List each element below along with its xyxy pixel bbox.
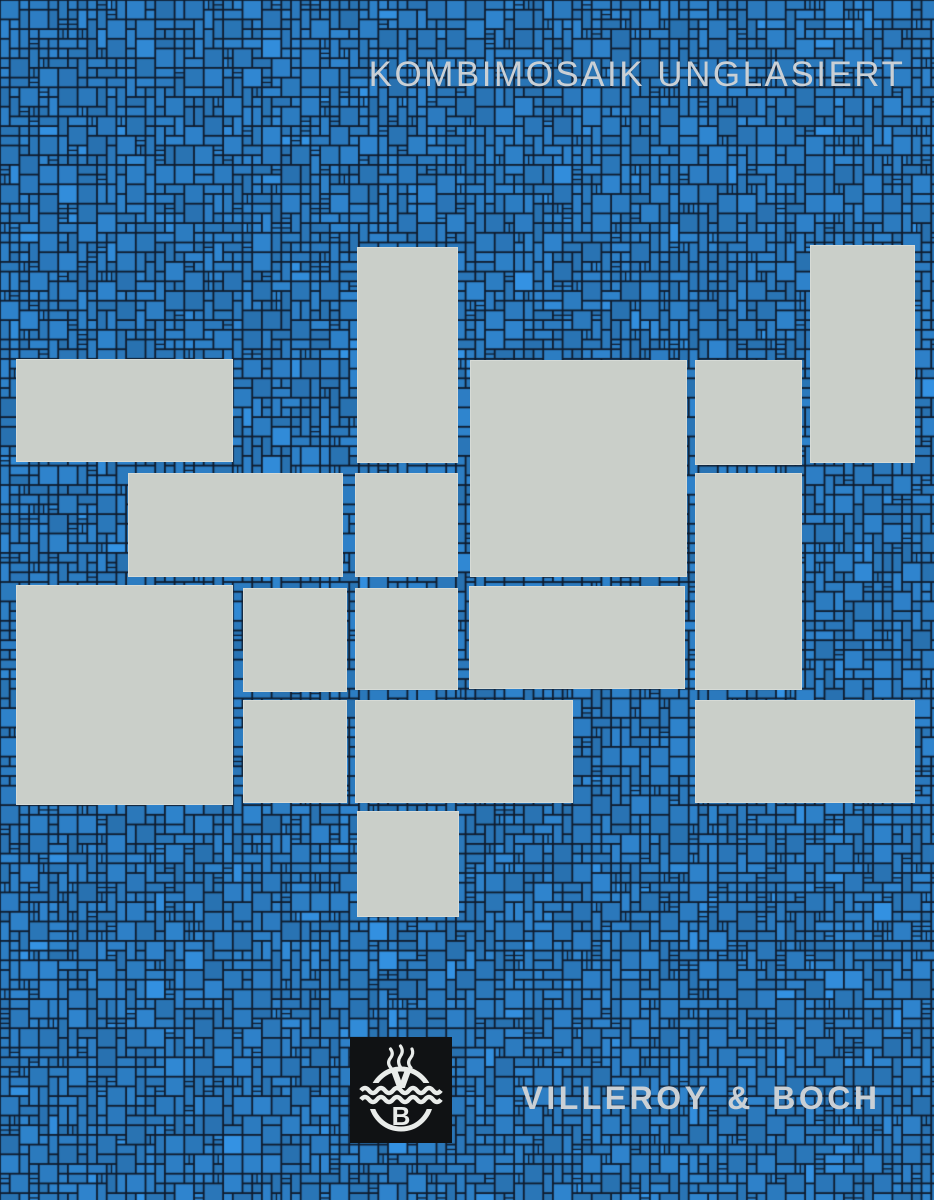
flame-icon xyxy=(399,1046,403,1068)
mosaic-sheet xyxy=(357,247,458,463)
poster-title: KOMBIMOSAIK UNGLASIERT xyxy=(369,51,906,98)
mosaic-sheet xyxy=(695,360,802,465)
mosaic-sheet xyxy=(810,245,915,463)
flame-icon xyxy=(409,1049,413,1068)
mosaic-sheet-composition xyxy=(0,0,934,1200)
monogram-b: B xyxy=(392,1101,411,1131)
mosaic-sheet xyxy=(695,473,802,690)
flame-icon xyxy=(389,1049,393,1068)
mosaic-sheet xyxy=(128,473,343,577)
mosaic-sheet xyxy=(16,359,233,462)
brand-wordmark: VILLEROY & BOCH xyxy=(521,1075,880,1121)
mosaic-sheet xyxy=(243,588,347,692)
mosaic-sheet xyxy=(243,700,347,803)
villeroy-boch-well-emblem: B xyxy=(350,1037,452,1143)
mosaic-sheet xyxy=(355,588,458,690)
mosaic-sheet xyxy=(469,586,685,689)
mosaic-sheet xyxy=(16,585,233,805)
mosaic-sheet xyxy=(355,473,458,577)
mosaic-sheet xyxy=(470,360,687,577)
mosaic-sheet xyxy=(695,700,915,803)
mosaic-sheet xyxy=(357,811,459,917)
mosaic-sheet xyxy=(355,700,573,803)
brochure-cover: KOMBIMOSAIK UNGLASIERT B VILLEROY & BOCH xyxy=(0,0,934,1200)
villeroy-boch-logo: B xyxy=(350,1037,452,1143)
